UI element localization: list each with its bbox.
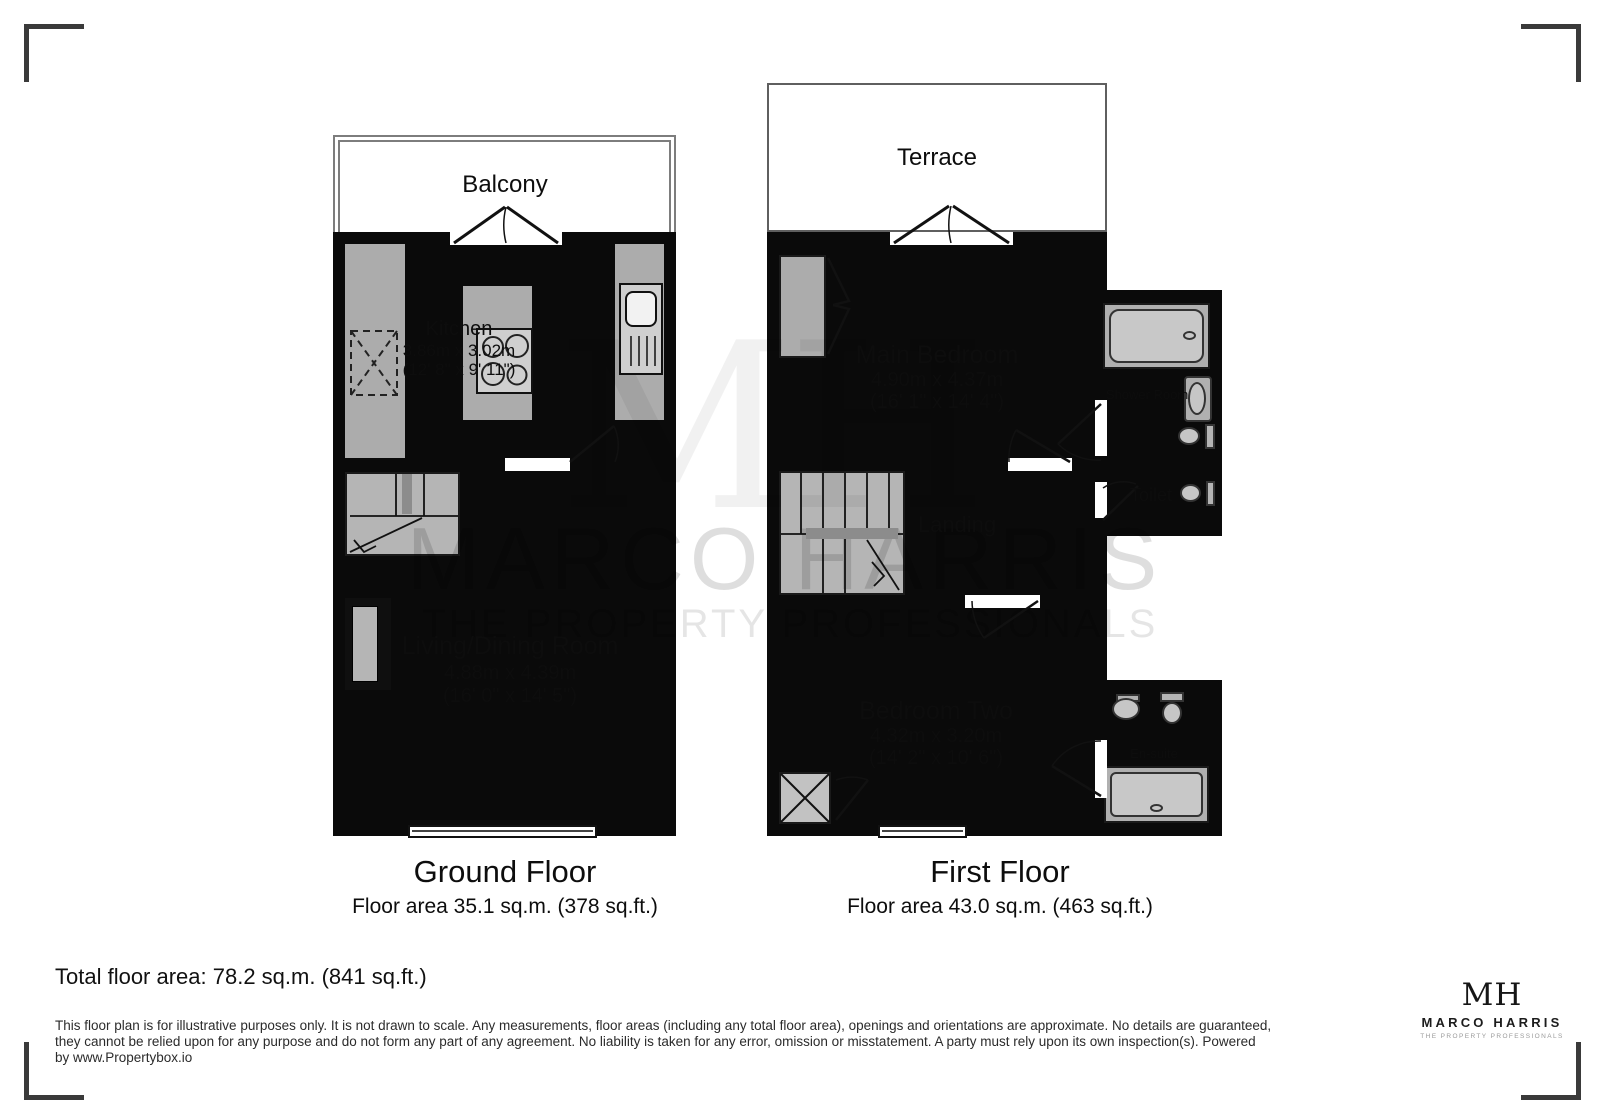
- staircase-ground: [345, 472, 460, 556]
- kitchen-label: Kitchen: [426, 318, 493, 340]
- toilet-bowl: [1180, 484, 1201, 502]
- corner-bracket-top-right-icon: [1521, 24, 1581, 82]
- wall-segment: [1107, 464, 1210, 477]
- agency-logo: MH MARCO HARRIS THE PROPERTY PROFESSIONA…: [1420, 980, 1563, 1040]
- disclaimer-line: This floor plan is for illustrative purp…: [55, 1018, 1375, 1034]
- shower-plug: [1150, 804, 1163, 812]
- agency-logo-name: MARCO HARRIS: [1420, 1015, 1563, 1030]
- agency-logo-monogram: MH: [1420, 980, 1563, 1011]
- bath-icon: [1103, 303, 1210, 369]
- wall-segment: [779, 595, 965, 608]
- wall-segment: [1072, 458, 1095, 471]
- window-glazing-line: [412, 830, 593, 832]
- wall-segment: [1040, 595, 1095, 608]
- corner-bracket-top-left-icon: [24, 24, 84, 82]
- sink-bowl: [1188, 382, 1206, 415]
- corner-bracket-bottom-left-icon: [24, 1042, 84, 1100]
- bedroom-two-dimensions-metric: 4.32m x 3.20m: [870, 725, 1002, 747]
- toilet-door-opening: [1095, 482, 1107, 518]
- sink-icon: [1112, 694, 1146, 724]
- kitchen-counter-left: [345, 244, 405, 458]
- window-glazing-line: [882, 830, 963, 832]
- sink-icon: [1184, 376, 1212, 422]
- window-icon: [878, 825, 967, 838]
- disclaimer-line: they cannot be relied upon for any purpo…: [55, 1034, 1375, 1050]
- terrace-door-opening: [890, 232, 1013, 245]
- living-room-dimensions-metric: 4.88m x 4.39m: [444, 662, 576, 684]
- first-floor-area: Floor area 43.0 sq.m. (463 sq.ft.): [847, 895, 1153, 919]
- bath-plug: [1183, 331, 1196, 340]
- ensuite-door-opening: [1095, 740, 1107, 798]
- toilet-icon: [1158, 692, 1190, 730]
- main-bedroom-label: Main Bedroom: [856, 341, 1019, 369]
- toilet-label: Toilet: [1130, 485, 1172, 505]
- toilet-cistern: [1206, 481, 1215, 506]
- kitchen-dimensions-metric: 3.86m x 3.02m: [403, 341, 515, 360]
- fireplace: [345, 598, 391, 690]
- agency-logo-tagline: THE PROPERTY PROFESSIONALS: [1420, 1033, 1563, 1040]
- corner-bracket-bottom-right-icon: [1521, 1042, 1581, 1100]
- kitchen-dimensions-imperial: (12' 8" x 9' 11"): [403, 360, 516, 379]
- shower-room-door-opening: [1095, 400, 1107, 456]
- kitchen-door-opening: [505, 458, 570, 471]
- living-room-dimensions-imperial: (16' 0" x 14' 5"): [443, 685, 577, 707]
- wardrobe-main-bedroom: [779, 255, 826, 358]
- main-bedroom-dimensions-metric: 4.90m x 4.37m: [871, 369, 1003, 391]
- disclaimer: This floor plan is for illustrative purp…: [55, 1018, 1375, 1066]
- staircase-first: [779, 471, 905, 595]
- window-icon: [408, 825, 597, 838]
- floorplan-page: MH MARCO HARRIS THE PROPERTY PROFESSIONA…: [0, 0, 1600, 1119]
- ground-floor-area: Floor area 35.1 sq.m. (378 sq.ft.): [352, 895, 658, 919]
- bedroom-two-door-opening: [965, 595, 1040, 608]
- ground-floor-title: Ground Floor: [414, 855, 597, 890]
- toilet-icon: [1178, 424, 1215, 451]
- balcony-door-opening: [450, 232, 562, 245]
- disclaimer-line: by www.Propertybox.io: [55, 1050, 1375, 1066]
- toilet-cistern: [1160, 692, 1184, 702]
- toilet-bowl: [1162, 702, 1182, 724]
- wall-segment: [345, 458, 505, 471]
- fireplace-hearth: [352, 606, 378, 682]
- main-bedroom-dimensions-imperial: (16' 1" x 14' 4"): [870, 391, 1004, 413]
- ensuite-label: En-suite: [1130, 747, 1178, 762]
- balcony-label: Balcony: [462, 172, 547, 199]
- first-floor-title: First Floor: [930, 855, 1070, 890]
- living-room-label: Living/Dining Room: [402, 632, 619, 660]
- sink-bowl: [1112, 698, 1140, 720]
- toilet-cistern: [1205, 424, 1215, 449]
- toilet-icon: [1180, 481, 1215, 508]
- wall-segment: [570, 458, 664, 471]
- main-bedroom-door-opening: [1008, 458, 1072, 471]
- toilet-bowl: [1178, 427, 1200, 445]
- shower-tray-icon: [1104, 766, 1209, 823]
- bedroom-two-dimensions-imperial: (14' 2" x 10' 6"): [869, 747, 1003, 769]
- wardrobe-bedroom-two: [779, 772, 831, 824]
- bedroom-two-label: Bedroom Two: [859, 697, 1013, 725]
- wall-segment: [779, 458, 1008, 471]
- shower-room-label: Shower Room: [1106, 388, 1188, 403]
- total-floor-area: Total floor area: 78.2 sq.m. (841 sq.ft.…: [55, 964, 427, 990]
- kitchen-counter-right: [615, 244, 664, 420]
- landing-label: Landing: [918, 513, 996, 538]
- terrace-label: Terrace: [897, 145, 977, 172]
